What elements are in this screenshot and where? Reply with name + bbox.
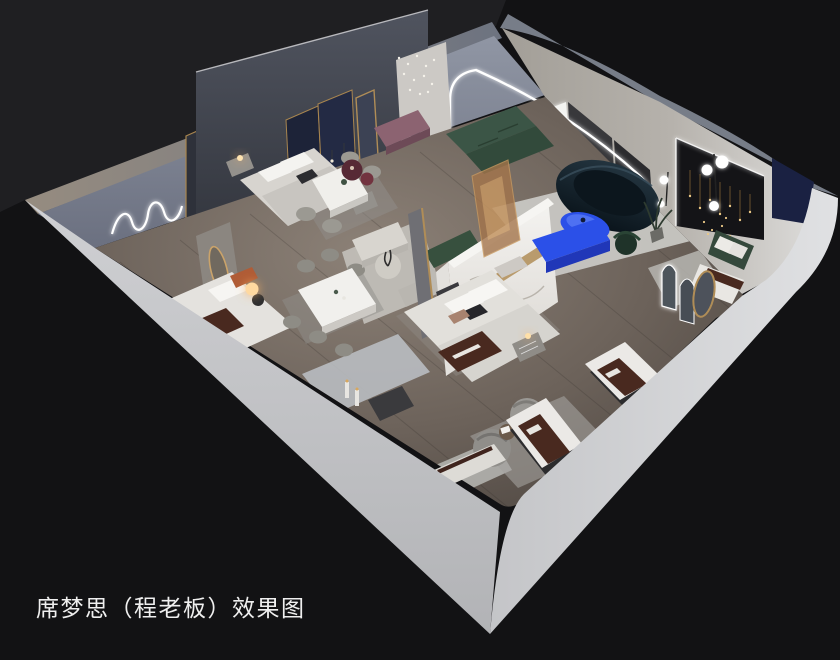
dining-chair (283, 316, 301, 329)
lamp-globe (716, 156, 729, 169)
lamp-globe (702, 165, 713, 176)
arched-mirror (662, 265, 676, 310)
dining-chair (322, 219, 342, 233)
isometric-scene (0, 0, 840, 660)
side-table (252, 294, 264, 306)
cylinder-lamp (355, 390, 359, 406)
cylinder-lamp (345, 382, 349, 398)
round-side-table (361, 173, 374, 186)
dining-chair (335, 344, 353, 357)
table-lamp (525, 333, 531, 339)
sconce-globe (660, 176, 669, 185)
caption-text: 席梦思（程老板）效果图 (36, 589, 306, 623)
lamp-globe (709, 201, 719, 211)
table-decor (581, 218, 586, 223)
table-plant (341, 179, 347, 185)
table-lamp (237, 155, 243, 161)
dining-chair (309, 331, 327, 344)
globe-lamp (246, 283, 259, 296)
rendering-canvas: 席梦思（程老板）效果图 (0, 0, 840, 660)
arched-mirror (680, 279, 694, 324)
dining-chair (296, 207, 316, 221)
